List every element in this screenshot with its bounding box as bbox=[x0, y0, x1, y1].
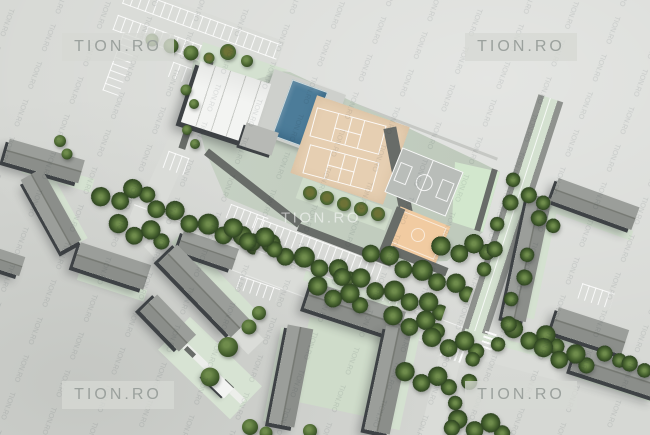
watermark-band-bottom-left: TION.RO bbox=[62, 381, 174, 409]
tree bbox=[62, 149, 73, 160]
tree bbox=[220, 44, 236, 60]
watermark-text: TION.RO bbox=[465, 33, 577, 61]
tree bbox=[241, 55, 253, 67]
tree bbox=[252, 306, 266, 320]
watermark-band-bottom-right: TION.RO bbox=[465, 381, 577, 409]
tree bbox=[54, 135, 66, 147]
tree bbox=[218, 337, 238, 357]
watermark-text-center: TION.RO bbox=[281, 210, 361, 227]
tree bbox=[320, 191, 334, 205]
watermark-text: TION.RO bbox=[62, 33, 174, 61]
watermark-band-top-right: TION.RO bbox=[465, 33, 577, 61]
tree bbox=[190, 139, 200, 149]
tree bbox=[182, 125, 192, 135]
tree bbox=[371, 207, 385, 221]
tree bbox=[201, 368, 220, 387]
tree bbox=[184, 46, 199, 61]
center-circle bbox=[409, 226, 427, 244]
tree bbox=[303, 424, 317, 435]
tree bbox=[189, 99, 199, 109]
tree bbox=[242, 419, 258, 435]
tree bbox=[242, 320, 257, 335]
tree bbox=[260, 427, 273, 435]
watermark-text: TION.RO bbox=[62, 381, 174, 409]
tree bbox=[204, 53, 215, 64]
site-plan-render: TION.RO TION.RO TION.RO TION.RO TION.RO … bbox=[0, 0, 650, 435]
apartment-block bbox=[0, 248, 25, 276]
tree bbox=[181, 85, 192, 96]
center-circle bbox=[413, 172, 435, 194]
watermark-band-top-left: TION.RO bbox=[62, 33, 174, 61]
tree bbox=[303, 186, 317, 200]
parking-row bbox=[577, 283, 614, 309]
watermark-text: TION.RO bbox=[465, 381, 577, 409]
